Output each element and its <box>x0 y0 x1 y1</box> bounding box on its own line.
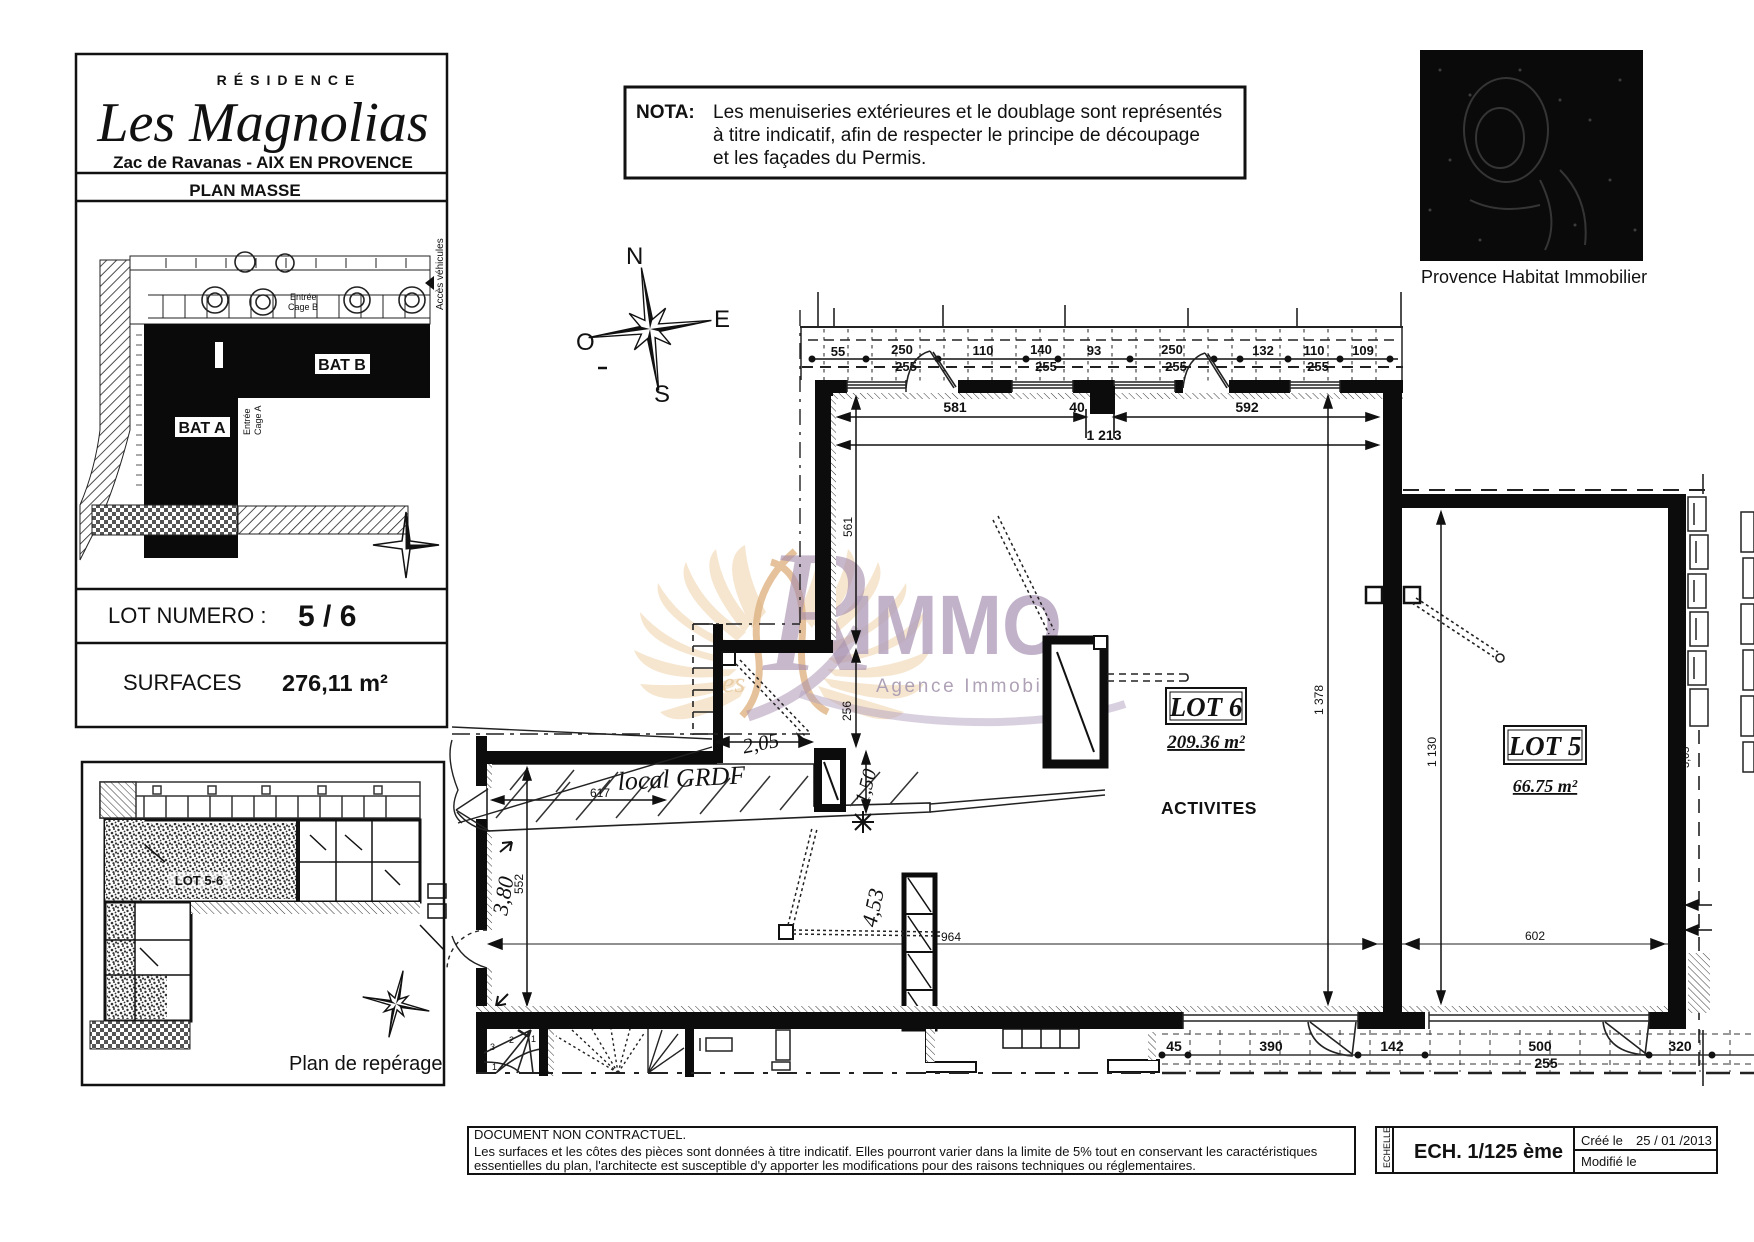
svg-text:Cage B: Cage B <box>288 302 318 312</box>
svg-text:552: 552 <box>512 874 526 894</box>
svg-text:250: 250 <box>1161 342 1183 357</box>
svg-text:255: 255 <box>1165 359 1187 374</box>
svg-text:255: 255 <box>1035 359 1057 374</box>
svg-text:LOT 5-6: LOT 5-6 <box>175 873 223 888</box>
svg-text:3,05: 3,05 <box>1680 747 1692 768</box>
svg-text:RÉSIDENCE: RÉSIDENCE <box>217 72 362 88</box>
svg-text:LOT 5: LOT 5 <box>1508 731 1582 761</box>
svg-text:Accès véhicules: Accès véhicules <box>435 238 446 310</box>
svg-text:602: 602 <box>1525 929 1545 943</box>
svg-text:255: 255 <box>1307 359 1329 374</box>
svg-text:BAT B: BAT B <box>318 357 366 374</box>
svg-text:1: 1 <box>492 1062 497 1072</box>
svg-text:25 / 01 /2013: 25 / 01 /2013 <box>1636 1133 1712 1148</box>
svg-text:IMMO: IMMO <box>852 578 1062 672</box>
svg-text:essentielles du plan, l'archit: essentielles du plan, l'architecte est s… <box>474 1158 1196 1173</box>
svg-text:S: S <box>654 381 670 408</box>
svg-text:255: 255 <box>895 359 917 374</box>
svg-text:66.75 m²: 66.75 m² <box>1513 776 1578 796</box>
svg-text:Modifié le: Modifié le <box>1581 1154 1637 1169</box>
svg-text:255: 255 <box>1534 1055 1558 1071</box>
svg-text:40: 40 <box>1069 399 1085 415</box>
svg-text:Entrée: Entrée <box>290 292 317 302</box>
svg-text:ACTIVITES: ACTIVITES <box>1161 798 1257 818</box>
svg-text:à titre indicatif, afin de res: à titre indicatif, afin de respecter le … <box>713 125 1200 146</box>
svg-text:500: 500 <box>1528 1038 1552 1054</box>
svg-text:Plan de repérage: Plan de repérage <box>289 1053 442 1075</box>
svg-text:140: 140 <box>1030 342 1052 357</box>
svg-text:Entrée: Entrée <box>242 408 252 435</box>
svg-text:ECH. 1/125 ème: ECH. 1/125 ème <box>1414 1141 1563 1163</box>
svg-text:581: 581 <box>943 399 967 415</box>
svg-text:320: 320 <box>1668 1038 1692 1054</box>
svg-text:Les Magnolias: Les Magnolias <box>96 92 428 154</box>
svg-text:Les surfaces et les côtes des: Les surfaces et les côtes des pièces son… <box>474 1144 1318 1159</box>
svg-text:1 213: 1 213 <box>1086 427 1121 443</box>
svg-text:964: 964 <box>941 930 961 944</box>
svg-text:109: 109 <box>1352 343 1374 358</box>
svg-text:209.36 m²: 209.36 m² <box>1166 732 1246 753</box>
svg-text:592: 592 <box>1235 399 1259 415</box>
svg-text:et les façades du Permis.: et les façades du Permis. <box>713 148 926 169</box>
svg-text:NOTA:: NOTA: <box>636 102 695 123</box>
svg-text:BAT A: BAT A <box>178 420 226 437</box>
svg-text:PLAN MASSE: PLAN MASSE <box>189 181 300 200</box>
svg-text:617: 617 <box>590 786 610 800</box>
svg-text:LOT NUMERO :: LOT NUMERO : <box>108 603 267 628</box>
svg-text:1: 1 <box>531 1034 536 1044</box>
svg-text:142: 142 <box>1380 1038 1404 1054</box>
svg-text:110: 110 <box>973 343 994 358</box>
svg-text:390: 390 <box>1259 1038 1283 1054</box>
svg-text:Les menuiseries extérieures et: Les menuiseries extérieures et le doubla… <box>713 102 1222 123</box>
svg-text:Cage A: Cage A <box>253 405 263 435</box>
svg-text:1 130: 1 130 <box>1425 737 1439 767</box>
svg-text:LOT 6: LOT 6 <box>1169 692 1243 722</box>
svg-text:Zac de Ravanas - AIX EN PROVEN: Zac de Ravanas - AIX EN PROVENCE <box>113 153 413 172</box>
svg-text:SURFACES: SURFACES <box>123 670 242 695</box>
svg-text:1 378: 1 378 <box>1312 685 1326 715</box>
svg-text:es: es <box>722 668 745 699</box>
svg-text:O: O <box>576 329 595 356</box>
svg-text:93: 93 <box>1087 343 1101 358</box>
svg-text:3: 3 <box>490 1042 495 1052</box>
svg-text:250: 250 <box>891 342 913 357</box>
svg-text:132: 132 <box>1252 343 1274 358</box>
svg-text:5 / 6: 5 / 6 <box>298 600 356 633</box>
svg-text:E: E <box>714 306 730 333</box>
svg-text:ECHELLE: ECHELLE <box>1382 1127 1392 1168</box>
svg-text:256: 256 <box>840 701 854 721</box>
svg-text:276,11 m²: 276,11 m² <box>282 670 388 696</box>
svg-text:2: 2 <box>509 1035 514 1045</box>
svg-text:Provence Habitat Immobilier: Provence Habitat Immobilier <box>1421 267 1647 287</box>
svg-text:Créé le: Créé le <box>1581 1133 1623 1148</box>
svg-text:N: N <box>626 243 643 270</box>
svg-text:45: 45 <box>1166 1038 1182 1054</box>
svg-text:DOCUMENT NON CONTRACTUEL.: DOCUMENT NON CONTRACTUEL. <box>474 1127 686 1142</box>
svg-text:55: 55 <box>831 344 845 359</box>
svg-text:561: 561 <box>841 517 855 537</box>
svg-text:110: 110 <box>1304 343 1325 358</box>
